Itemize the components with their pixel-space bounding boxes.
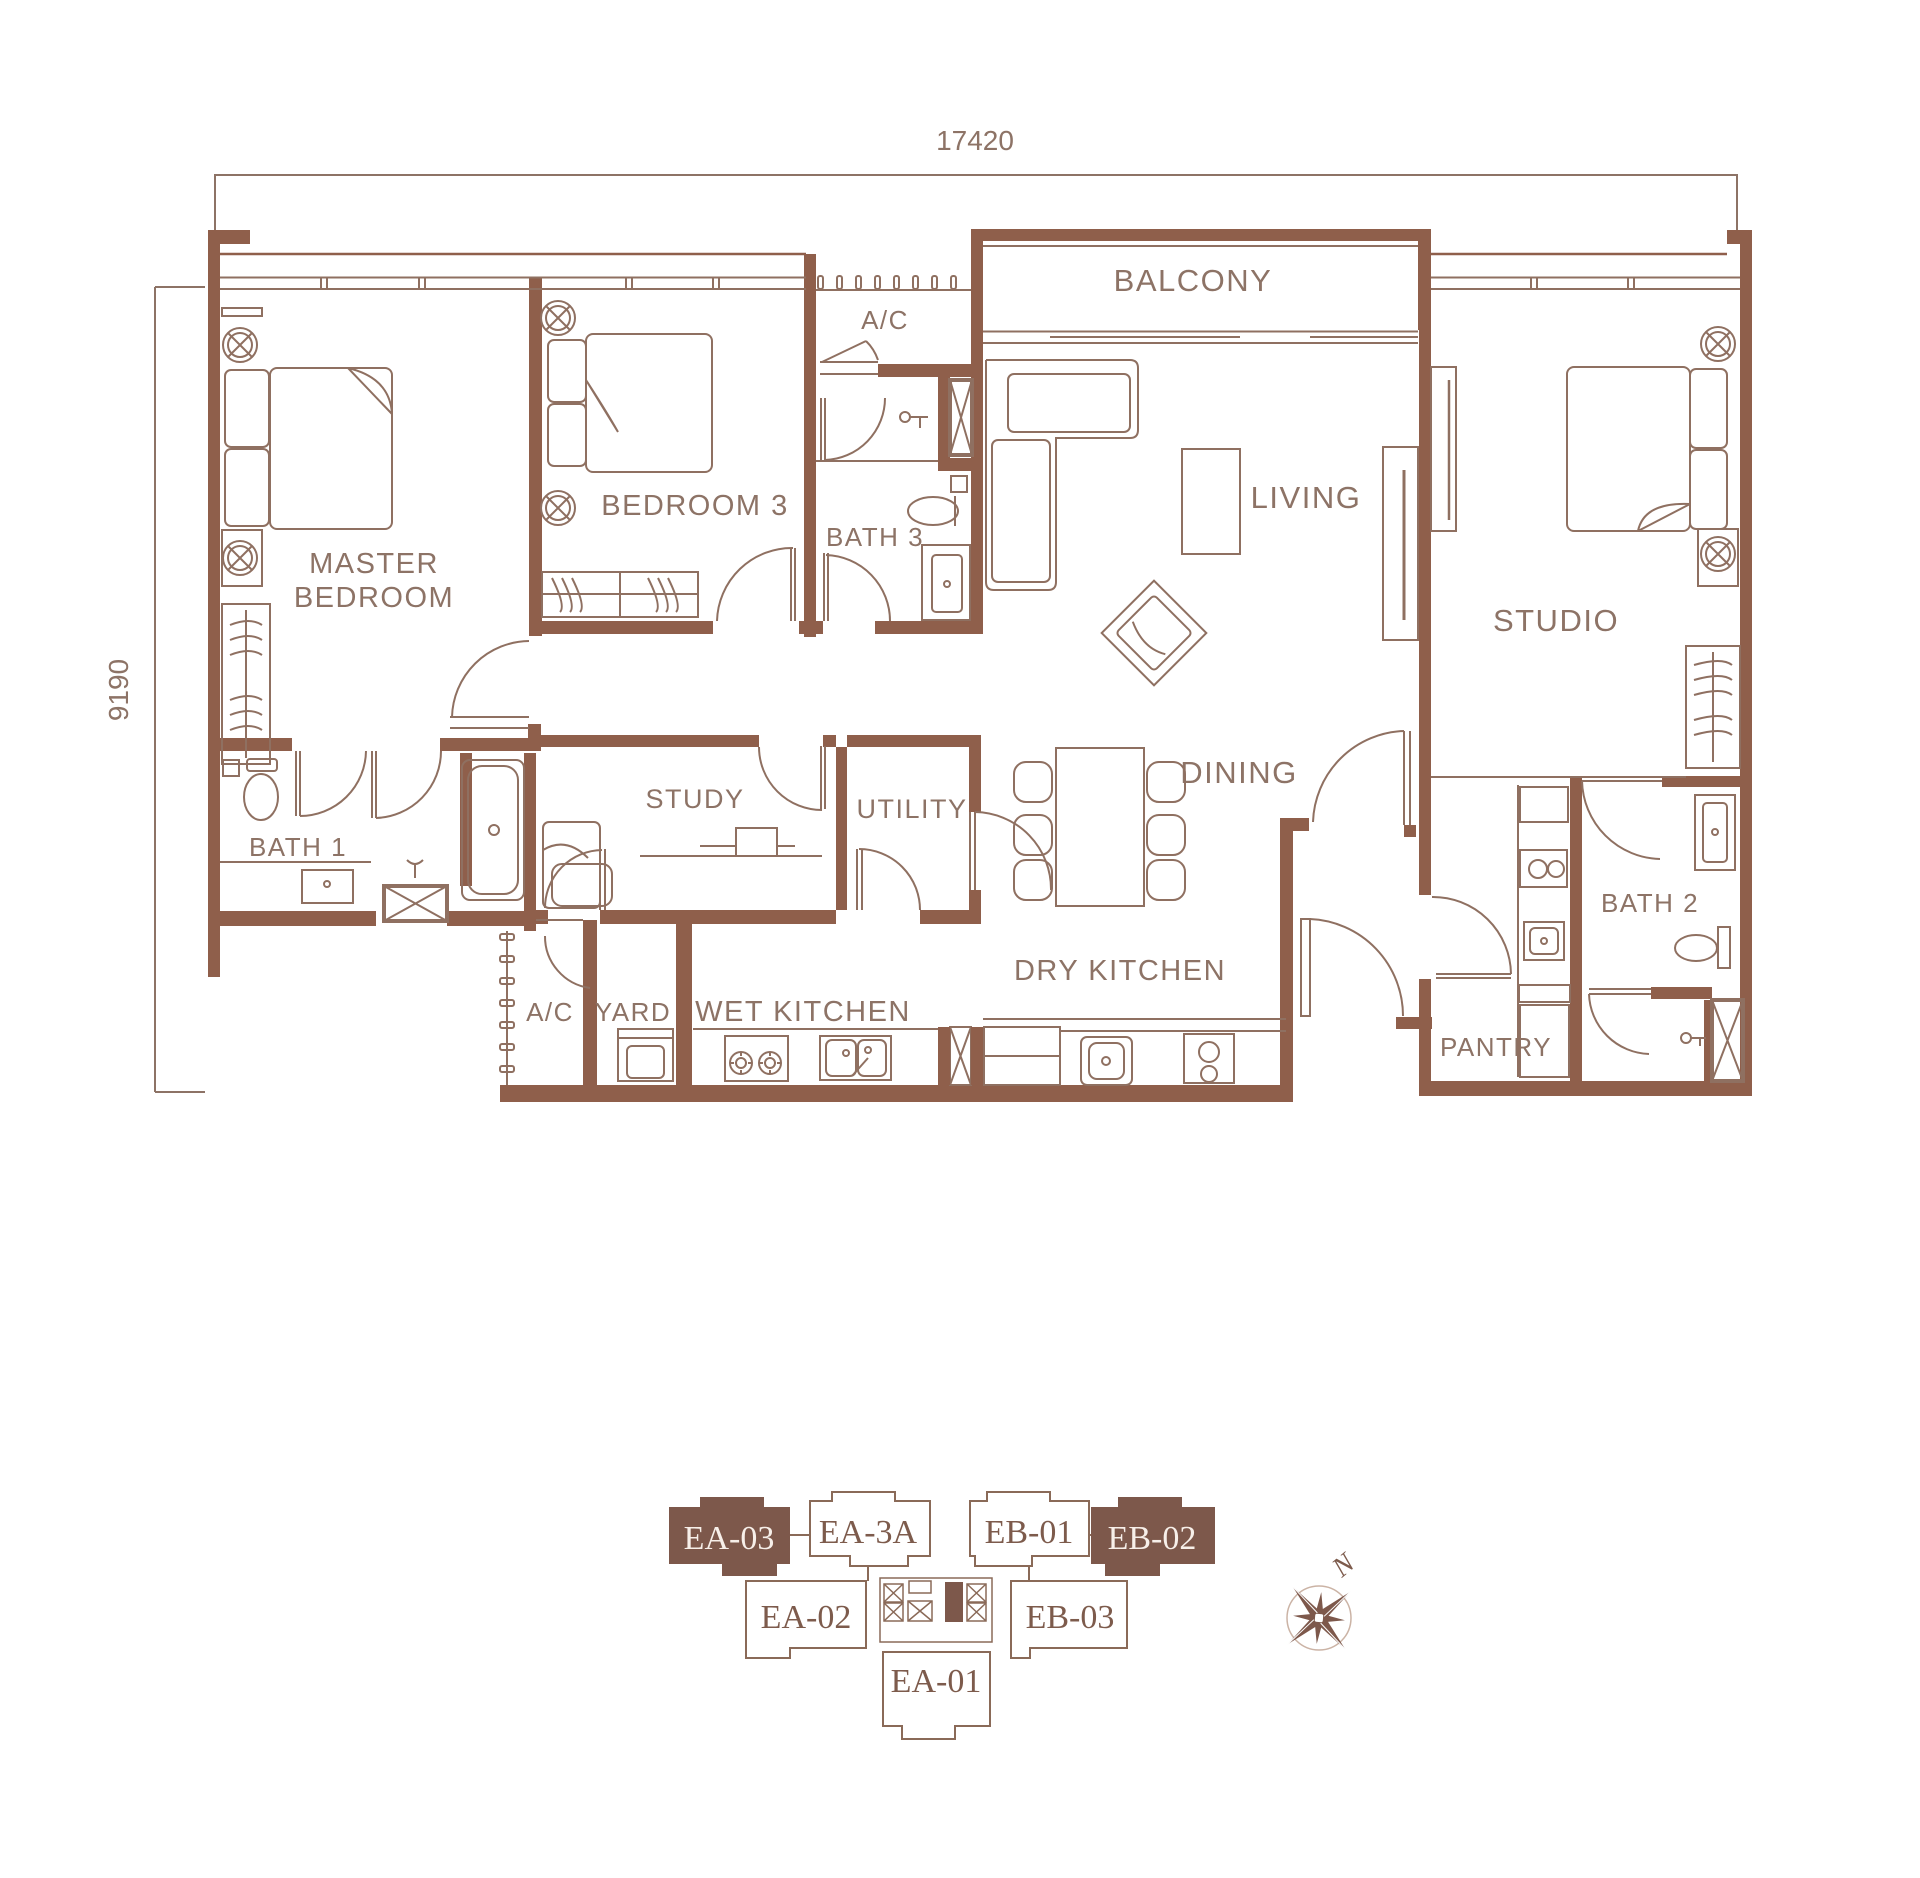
svg-text:BEDROOM: BEDROOM <box>294 582 454 614</box>
svg-text:EB-02: EB-02 <box>1108 1520 1197 1557</box>
svg-text:BATH 3: BATH 3 <box>826 522 924 552</box>
svg-text:EA-02: EA-02 <box>761 1599 852 1636</box>
svg-text:STUDIO: STUDIO <box>1493 603 1619 638</box>
svg-text:WET KITCHEN: WET KITCHEN <box>695 996 911 1028</box>
svg-text:STUDY: STUDY <box>645 784 744 814</box>
svg-text:UTILITY: UTILITY <box>856 794 967 824</box>
svg-text:A/C: A/C <box>526 997 574 1027</box>
svg-text:A/C: A/C <box>861 305 909 335</box>
svg-text:YARD: YARD <box>595 997 671 1027</box>
svg-text:9190: 9190 <box>103 659 134 721</box>
svg-text:17420: 17420 <box>936 125 1014 156</box>
svg-text:BEDROOM 3: BEDROOM 3 <box>601 490 789 522</box>
svg-text:BALCONY: BALCONY <box>1114 263 1273 298</box>
svg-text:BATH 2: BATH 2 <box>1601 888 1699 918</box>
svg-text:BATH 1: BATH 1 <box>249 832 347 862</box>
svg-text:PANTRY: PANTRY <box>1440 1032 1552 1062</box>
svg-text:EB-01: EB-01 <box>985 1514 1074 1551</box>
svg-text:DINING: DINING <box>1180 755 1298 790</box>
svg-text:MASTER: MASTER <box>309 548 439 580</box>
svg-text:DRY KITCHEN: DRY KITCHEN <box>1014 955 1226 987</box>
svg-text:EA-3A: EA-3A <box>819 1514 918 1551</box>
svg-text:EB-03: EB-03 <box>1026 1599 1115 1636</box>
svg-text:LIVING: LIVING <box>1251 480 1362 515</box>
svg-text:EA-03: EA-03 <box>684 1520 775 1557</box>
svg-text:EA-01: EA-01 <box>891 1663 982 1700</box>
